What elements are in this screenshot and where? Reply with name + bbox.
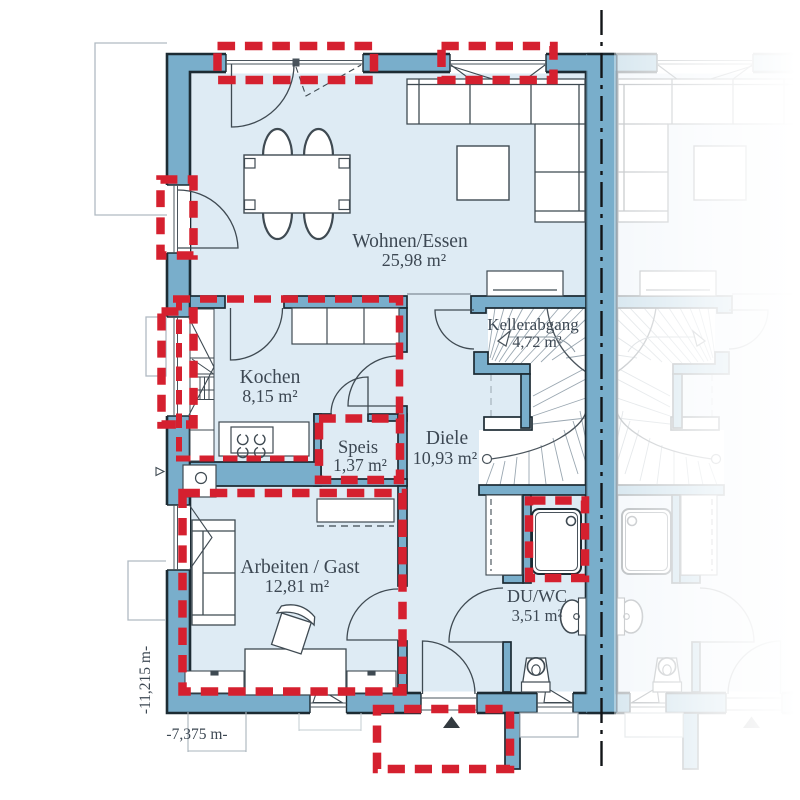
- svg-text:10,93 m²: 10,93 m²: [413, 448, 477, 468]
- svg-text:4,72 m²: 4,72 m²: [512, 334, 561, 351]
- svg-text:Arbeiten / Gast: Arbeiten / Gast: [240, 557, 360, 578]
- svg-text:Wohnen/Essen: Wohnen/Essen: [352, 231, 468, 252]
- svg-text:-11,215 m-: -11,215 m-: [137, 646, 154, 714]
- svg-text:12,81 m²: 12,81 m²: [265, 576, 329, 596]
- svg-text:DU/WC: DU/WC: [507, 586, 567, 606]
- svg-text:25,98 m²: 25,98 m²: [382, 250, 446, 270]
- svg-text:3,51 m²: 3,51 m²: [512, 606, 563, 625]
- svg-text:-7,375 m-: -7,375 m-: [166, 726, 227, 743]
- svg-text:Kellerabgang: Kellerabgang: [487, 315, 579, 334]
- svg-text:Diele: Diele: [426, 428, 468, 449]
- svg-text:Kochen: Kochen: [240, 367, 301, 388]
- svg-text:1,37 m²: 1,37 m²: [333, 455, 387, 475]
- svg-text:8,15 m²: 8,15 m²: [242, 386, 297, 406]
